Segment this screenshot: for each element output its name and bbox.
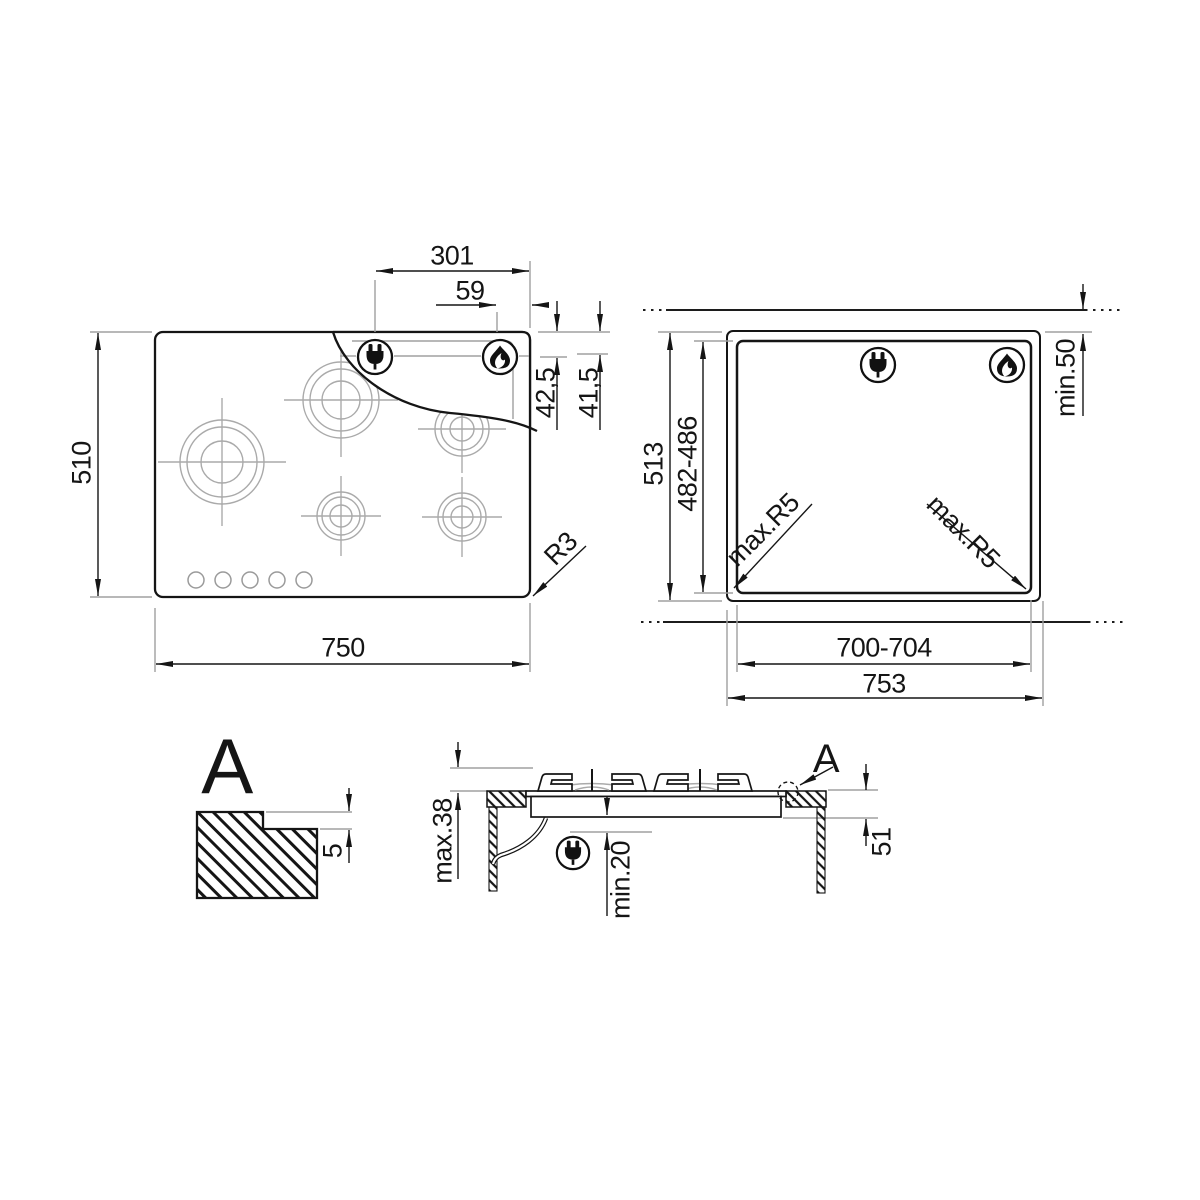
power-plug-icon [861, 348, 895, 382]
worktop-section-right [786, 791, 826, 807]
dim-step-depth: 5 [320, 844, 347, 859]
dim-rear-clearance: min.50 [1053, 339, 1080, 417]
top-view-drawing [90, 261, 610, 672]
cabinet-side-left [489, 807, 497, 891]
dim-hob-height: 510 [69, 441, 96, 485]
dim-cutout-width: 700-704 [836, 635, 932, 662]
cabinet-side-right [817, 807, 825, 893]
power-cable [493, 818, 546, 864]
dim-plug-offset: 301 [430, 243, 474, 270]
gas-flame-icon [483, 340, 517, 374]
power-plug-icon [557, 837, 589, 869]
gas-flame-icon [990, 348, 1024, 382]
worktop-edge-section [197, 812, 317, 898]
dim-plug-inset: 42,5 [533, 368, 560, 419]
dim-clearance-below: min.20 [608, 841, 635, 919]
dim-hob-width: 750 [321, 635, 365, 662]
installation-drawing-page: 301 59 42,5 41,5 510 750 R3 513 482-486 … [0, 0, 1200, 1200]
dim-depth-below-worktop: 51 [869, 827, 896, 856]
technical-drawing [0, 0, 1200, 1200]
dim-panel-height: 513 [641, 442, 668, 486]
dim-height-above-worktop: max.38 [430, 798, 457, 884]
hob-body [531, 797, 781, 818]
pan-support-grate [538, 769, 752, 791]
dim-cutout-height: 482-486 [675, 416, 702, 512]
side-detail-a-label: A [813, 739, 839, 779]
detail-a-label: A [201, 727, 253, 805]
power-plug-icon [358, 340, 392, 374]
dim-flame-inset: 41,5 [576, 368, 603, 419]
dim-panel-width: 753 [862, 671, 906, 698]
worktop-section-left [487, 791, 526, 807]
dim-flame-offset: 59 [455, 278, 484, 305]
